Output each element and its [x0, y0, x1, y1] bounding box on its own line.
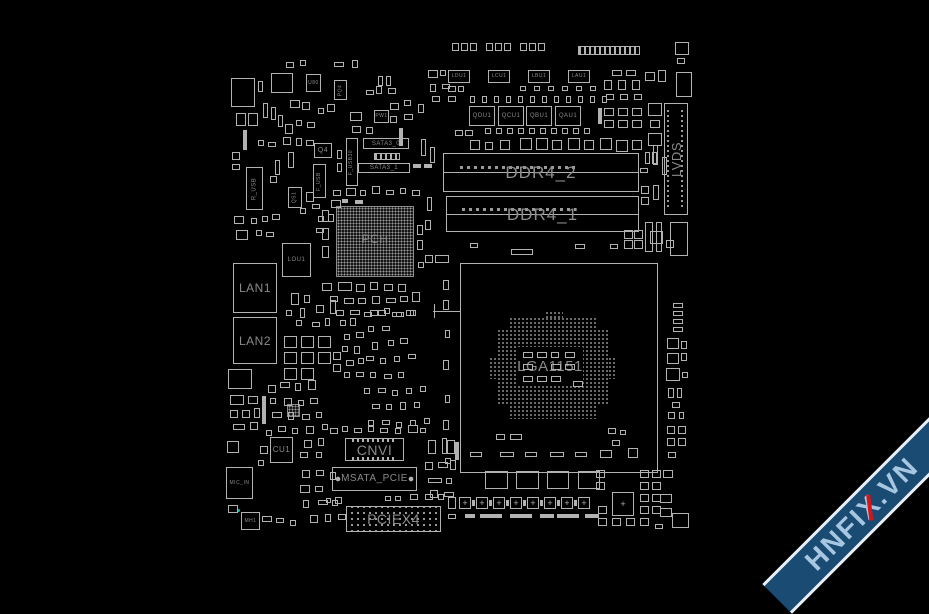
- passive-component: [346, 360, 354, 366]
- r-usb-connector: R_USB: [246, 167, 263, 210]
- passive-component: [485, 128, 491, 134]
- passive-component: [398, 372, 404, 378]
- passive-component: [645, 152, 650, 164]
- passive-component: [551, 352, 559, 358]
- passive-component: [610, 244, 618, 249]
- mic-in-jack-label: MIC_IN: [230, 481, 250, 486]
- passive-component: [306, 426, 314, 434]
- passive-component: [652, 482, 661, 490]
- passive-component: [584, 128, 590, 134]
- passive-component: [523, 500, 526, 506]
- passive-component: [504, 43, 511, 51]
- passive-component: [307, 122, 315, 128]
- passive-component: [660, 508, 672, 517]
- passive-component: [358, 298, 366, 304]
- passive-component: [677, 388, 682, 398]
- ldu1-inductor-label: LDU1: [452, 74, 467, 79]
- passive-component: [584, 140, 594, 150]
- passive-component: [430, 84, 436, 92]
- passive-component: [648, 103, 662, 116]
- passive-component: [286, 310, 292, 316]
- passive-component: [286, 62, 294, 68]
- plus-cap: [561, 497, 573, 509]
- passive-component: [334, 62, 344, 67]
- passive-component: [372, 404, 380, 409]
- passive-component: [568, 138, 580, 150]
- passive-component: [342, 426, 348, 432]
- passive-component: [428, 70, 438, 78]
- passive-component: [280, 382, 290, 388]
- passive-component: [485, 471, 508, 489]
- passive-component: [537, 352, 547, 358]
- po4-component: PO4: [334, 80, 347, 100]
- passive-component: [386, 298, 396, 303]
- passive-component: [302, 414, 310, 420]
- q4-component-label: Q4: [318, 147, 328, 154]
- passive-component: [406, 310, 414, 316]
- r-usb-connector-label: R_USB: [252, 177, 258, 200]
- passive-component: [290, 100, 300, 108]
- passive-component: [562, 128, 568, 134]
- passive-component: [372, 296, 380, 304]
- passive-component: [540, 128, 546, 134]
- passive-component: [645, 72, 655, 81]
- plus-cap: [578, 497, 590, 509]
- lau1-inductor-label: LAU1: [572, 74, 587, 79]
- passive-component: [414, 402, 420, 408]
- passive-component: [360, 190, 366, 196]
- cpu-pin-corner-mask: [596, 317, 609, 330]
- passive-component: [386, 190, 394, 195]
- passive-component: [382, 420, 390, 425]
- passive-component: [318, 352, 331, 364]
- passive-component: [632, 108, 642, 116]
- passive-component: [288, 412, 294, 420]
- passive-component: [337, 163, 342, 172]
- passive-component: [272, 412, 282, 418]
- passive-component: [534, 86, 540, 91]
- passive-component: [682, 372, 688, 378]
- qcu1-power-stage: QCU1: [498, 106, 524, 126]
- passive-component: [500, 140, 510, 150]
- qdu1-power-stage: QDU1: [469, 106, 495, 126]
- passive-component: [258, 140, 264, 146]
- passive-component: [620, 430, 626, 435]
- passive-component: [566, 96, 571, 103]
- passive-component: [672, 513, 689, 528]
- passive-component: [390, 103, 399, 110]
- passive-component: [448, 497, 456, 509]
- passive-component: [634, 94, 642, 100]
- boardview-canvas: DDR4_2DDR4_1LVDSPCHLGA1151LAN1LAN2LOU1SA…: [0, 0, 929, 581]
- passive-component: [301, 352, 314, 364]
- passive-component: [668, 452, 676, 458]
- passive-component: [333, 190, 341, 196]
- passive-component: [322, 210, 329, 222]
- passive-component: [270, 398, 276, 404]
- passive-component: [489, 500, 492, 506]
- passive-component: [418, 262, 424, 268]
- passive-component: [681, 353, 687, 361]
- passive-component: [624, 230, 633, 239]
- passive-component: [523, 376, 533, 382]
- passive-component: [632, 140, 642, 150]
- passive-component: [500, 452, 514, 457]
- passive-component: [330, 428, 338, 434]
- passive-component: [585, 514, 599, 518]
- passive-component: [316, 452, 322, 458]
- passive-component: [480, 514, 502, 518]
- passive-component: [551, 376, 561, 382]
- cpu-pin-tab-top: [545, 311, 563, 318]
- qbu1-power-stage-label: QBU1: [530, 113, 548, 119]
- passive-component: [236, 113, 246, 126]
- passive-component: [641, 197, 649, 205]
- pw1-component: PW1: [374, 110, 389, 123]
- passive-component: [290, 520, 296, 526]
- passive-component: [672, 402, 680, 408]
- ldu1-inductor: LDU1: [448, 70, 470, 83]
- passive-component: [354, 346, 360, 354]
- passive-component: [364, 312, 372, 317]
- passive-component: [663, 470, 673, 478]
- passive-component: [395, 496, 401, 501]
- pw1-component-label: PW1: [375, 114, 387, 119]
- passive-component: [350, 310, 360, 315]
- passive-component: [425, 462, 433, 470]
- qs1-component-label: QS1: [292, 192, 297, 204]
- passive-component: [667, 338, 679, 349]
- passive-component: [472, 500, 475, 506]
- passive-component: [547, 471, 569, 489]
- lou1-chip: LOU1: [282, 243, 311, 277]
- f-usb-header: F_USB: [313, 164, 326, 198]
- passive-component: [368, 326, 374, 332]
- cu1-chip: CU1: [270, 437, 293, 463]
- passive-component: [408, 425, 418, 433]
- passive-component: [618, 120, 628, 128]
- passive-component: [303, 500, 309, 508]
- passive-component: [418, 104, 424, 113]
- f-usb30-header: F_USB30: [346, 138, 358, 186]
- trace-hline: [433, 311, 461, 312]
- passive-component: [598, 518, 607, 526]
- passive-component: [392, 390, 398, 396]
- passive-component: [366, 356, 374, 361]
- passive-component: [318, 108, 324, 114]
- passive-component: [653, 145, 658, 165]
- passive-component: [620, 94, 628, 100]
- passive-component: [540, 514, 554, 518]
- passive-component: [322, 246, 329, 258]
- passive-component: [333, 352, 341, 360]
- passive-component: [578, 471, 600, 489]
- passive-component: [330, 296, 338, 302]
- passive-component: [425, 220, 431, 230]
- passive-component: [653, 185, 659, 200]
- passive-component: [507, 128, 513, 134]
- passive-component: [413, 164, 421, 168]
- passive-component: [470, 43, 477, 51]
- plus-chip: [612, 492, 634, 516]
- passive-component: [340, 320, 346, 326]
- passive-component: [455, 130, 463, 136]
- passive-component: [548, 86, 554, 91]
- passive-component: [385, 496, 391, 501]
- passive-component: [632, 80, 640, 90]
- cpu-pin-corner-mask: [497, 317, 510, 330]
- passive-component: [288, 152, 294, 168]
- passive-component: [640, 482, 649, 490]
- passive-component: [271, 107, 276, 120]
- passive-component: [612, 70, 622, 76]
- passive-component: [557, 500, 560, 506]
- sata-pin-strip: [374, 153, 400, 160]
- passive-component: [330, 472, 336, 480]
- passive-component: [554, 96, 559, 103]
- passive-component: [336, 310, 344, 316]
- passive-component: [372, 342, 378, 350]
- passive-component: [410, 494, 418, 500]
- mh1-component-label: MH1: [244, 519, 256, 524]
- passive-component: [634, 230, 643, 239]
- lcu1-inductor: LCU1: [488, 70, 510, 83]
- passive-component: [452, 43, 459, 51]
- passive-component: [420, 386, 426, 392]
- passive-component: [256, 230, 262, 236]
- passive-component: [496, 128, 502, 134]
- passive-component: [668, 388, 674, 398]
- passive-component: [598, 506, 607, 514]
- passive-component: [406, 388, 412, 394]
- passive-component: [325, 318, 330, 326]
- passive-component: [301, 336, 314, 348]
- passive-component: [443, 300, 449, 310]
- passive-component: [510, 434, 522, 440]
- passive-component: [435, 255, 449, 263]
- passive-component: [242, 410, 250, 418]
- passive-component: [667, 426, 675, 434]
- passive-component: [378, 310, 386, 316]
- passive-component: [386, 76, 391, 86]
- ddr4-2-slot-label: DDR4_2: [505, 164, 576, 181]
- passive-component: [258, 460, 264, 466]
- passive-component: [495, 43, 502, 51]
- plus-cap: [476, 497, 488, 509]
- passive-component: [316, 305, 324, 313]
- passive-component: [263, 103, 268, 118]
- cpu-pin-corner-mask: [497, 406, 510, 419]
- passive-component: [338, 514, 346, 520]
- passive-component: [681, 341, 687, 349]
- passive-component: [378, 76, 383, 86]
- passive-component: [562, 86, 568, 91]
- passive-component: [574, 500, 577, 506]
- passive-component: [510, 514, 532, 518]
- passive-component: [465, 130, 473, 136]
- passive-component: [392, 312, 402, 317]
- lcu1-inductor-label: LCU1: [492, 74, 507, 79]
- passive-component: [300, 208, 306, 214]
- lan2-connector: LAN2: [233, 317, 277, 364]
- passive-component: [304, 440, 312, 448]
- passive-component: [291, 293, 299, 305]
- passive-component: [662, 157, 667, 175]
- passive-component: [258, 81, 263, 92]
- msata-pcie-slot: MSATA_PCIE: [332, 467, 417, 491]
- passive-component: [551, 364, 561, 370]
- passive-component: [364, 388, 370, 394]
- passive-component: [445, 395, 450, 403]
- passive-component: [634, 240, 643, 249]
- cpu-pin-corner-mask: [596, 406, 609, 419]
- passive-component: [576, 86, 582, 91]
- passive-component: [327, 104, 335, 112]
- ddr4-1-slot-label: DDR4_1: [507, 206, 578, 223]
- passive-component: [388, 88, 396, 94]
- passive-component: [285, 124, 293, 134]
- passive-component: [271, 73, 293, 93]
- passive-component: [296, 120, 302, 126]
- passive-component: [231, 78, 255, 107]
- passive-component: [300, 452, 308, 458]
- passive-component: [368, 426, 374, 432]
- pciex4-slot: PCIEX4: [346, 506, 441, 532]
- passive-component: [326, 498, 331, 503]
- passive-component: [640, 506, 649, 514]
- passive-component: [372, 186, 380, 194]
- lan1-connector: LAN1: [233, 263, 277, 313]
- u80-chip-label: U80: [308, 81, 319, 86]
- passive-component: [675, 42, 689, 55]
- passive-component: [640, 470, 649, 478]
- passive-component: [600, 138, 612, 150]
- passive-component: [673, 311, 683, 316]
- passive-component: [628, 448, 638, 458]
- passive-component: [260, 446, 268, 454]
- passive-component: [370, 282, 378, 290]
- passive-component: [428, 478, 442, 483]
- passive-component: [443, 360, 449, 370]
- passive-component: [404, 100, 411, 106]
- passive-component: [283, 137, 291, 145]
- passive-component: [626, 70, 636, 76]
- passive-component: [344, 372, 350, 378]
- ddr4-1-slot: DDR4_1: [446, 196, 639, 232]
- cnvi-slot-label: CNVI: [357, 443, 392, 457]
- sata3-0-connector-label: SATA3_0: [372, 141, 400, 147]
- passive-component: [673, 327, 683, 332]
- passive-component: [322, 424, 328, 430]
- passive-component: [417, 240, 423, 250]
- lau1-inductor: LAU1: [568, 70, 590, 83]
- passive-component: [421, 139, 426, 156]
- plus-cap: [527, 497, 539, 509]
- passive-component: [632, 120, 642, 128]
- passive-component: [248, 113, 258, 126]
- passive-component: [316, 470, 324, 476]
- passive-component: [270, 176, 277, 183]
- passive-component: [440, 70, 446, 76]
- lbu1-inductor-label: LBU1: [532, 74, 547, 79]
- passive-component: [598, 108, 602, 124]
- ddr4-2-slot: DDR4_2: [443, 153, 639, 192]
- qbu1-power-stage: QBU1: [526, 106, 552, 126]
- passive-component: [358, 358, 364, 364]
- po4-component-label: PO4: [338, 84, 343, 96]
- passive-component: [250, 422, 258, 430]
- passive-component: [300, 60, 306, 66]
- passive-component: [486, 43, 493, 51]
- passive-component: [296, 138, 302, 146]
- passive-component: [660, 494, 672, 503]
- passive-component: [604, 108, 614, 116]
- sata3-1-connector-label: SATA3_1: [370, 165, 398, 171]
- passive-component: [551, 128, 557, 134]
- passive-component: [266, 430, 272, 436]
- passive-component: [251, 218, 257, 224]
- passive-component: [248, 396, 258, 404]
- passive-component: [679, 412, 684, 419]
- passive-component: [284, 336, 297, 348]
- qcu1-power-stage-label: QCU1: [502, 113, 521, 119]
- passive-component: [445, 330, 450, 338]
- passive-component: [417, 225, 423, 235]
- passive-component: [342, 199, 348, 203]
- passive-component: [618, 80, 626, 90]
- msata-pcie-slot-label: MSATA_PCIE: [341, 474, 408, 484]
- passive-component: [525, 452, 537, 457]
- passive-component: [384, 374, 392, 379]
- passive-component: [540, 500, 543, 506]
- passive-component: [378, 388, 386, 393]
- passive-component: [604, 80, 612, 90]
- passive-component: [356, 284, 365, 292]
- passive-component: [404, 114, 413, 120]
- passive-component: [295, 383, 301, 391]
- passive-component: [604, 120, 614, 128]
- passive-component: [667, 438, 675, 446]
- f-usb30-header-label: F_USB30: [350, 149, 355, 174]
- passive-component: [673, 303, 683, 308]
- passive-component: [461, 43, 468, 51]
- passive-component: [243, 130, 247, 150]
- passive-component: [670, 222, 688, 256]
- passive-component: [400, 296, 408, 302]
- passive-component: [306, 192, 314, 202]
- passive-component: [370, 372, 376, 378]
- passive-component: [284, 398, 292, 406]
- passive-component: [315, 486, 323, 492]
- sata3-1-connector: SATA3_1: [358, 163, 410, 173]
- passive-component: [523, 352, 533, 358]
- passive-component: [312, 204, 320, 209]
- passive-component: [322, 283, 332, 291]
- plus-cap: [493, 497, 505, 509]
- passive-component: [678, 438, 686, 446]
- passive-component: [352, 60, 358, 68]
- plus-cap: [510, 497, 522, 509]
- passive-component: [600, 450, 612, 458]
- passive-component: [388, 340, 394, 346]
- passive-component: [626, 518, 635, 526]
- passive-component: [232, 164, 240, 170]
- passive-component: [318, 336, 331, 348]
- passive-component: [412, 190, 420, 196]
- passive-component: [494, 96, 499, 103]
- passive-component: [612, 440, 620, 446]
- q4-component: Q4: [314, 143, 332, 158]
